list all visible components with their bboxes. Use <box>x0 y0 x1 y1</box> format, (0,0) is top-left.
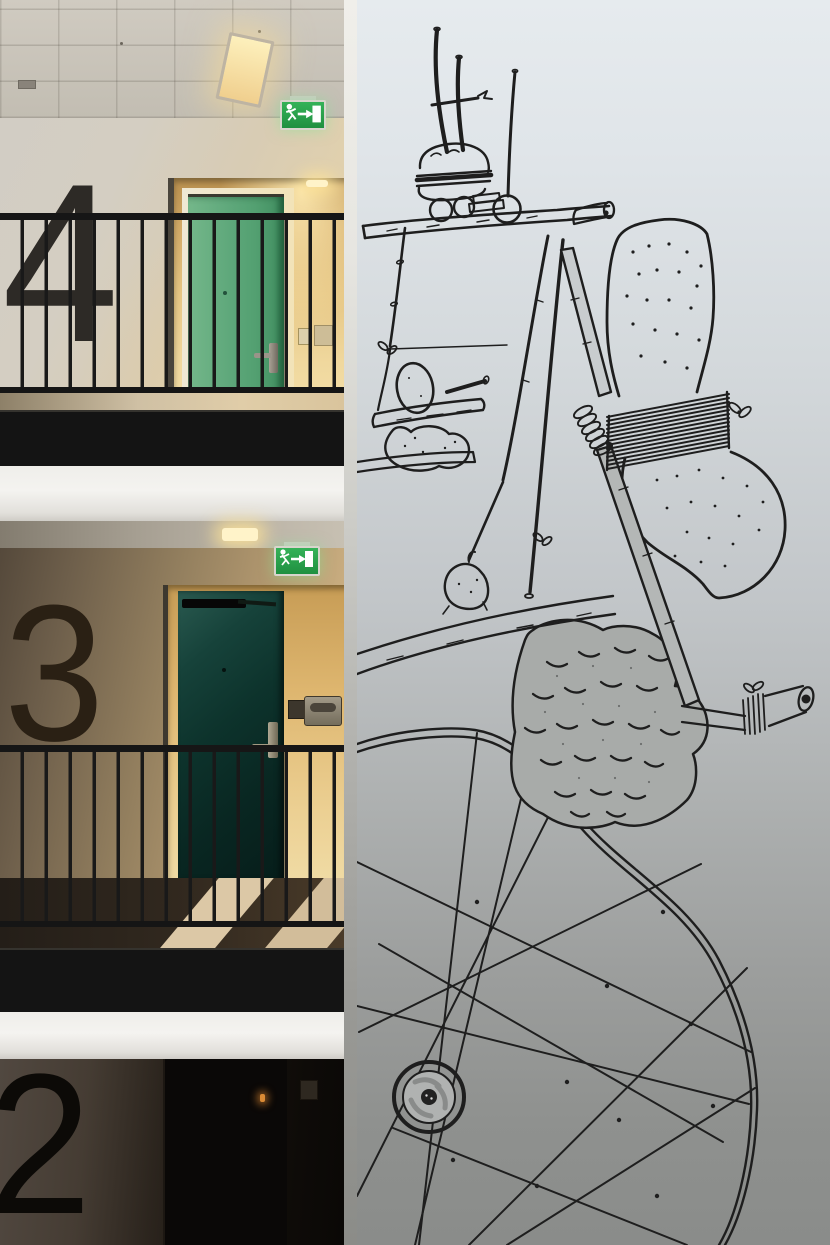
floor3-slab-fascia <box>0 948 345 1014</box>
mural-twine-band <box>607 392 753 470</box>
recessed-downlight <box>222 528 258 541</box>
running-man-icon <box>280 549 285 554</box>
sprinkler-dot <box>120 42 123 45</box>
mural-table-top <box>363 202 614 238</box>
mural-drawing <box>357 0 830 1245</box>
wall-corner-column <box>344 0 358 1245</box>
floor3-railing <box>0 745 345 927</box>
mural-weight-sack-on-plank <box>443 552 488 614</box>
exit-sign <box>280 96 326 130</box>
door-closer <box>182 599 246 608</box>
twine-bow <box>727 401 752 419</box>
railing-bottom-rail <box>0 921 345 927</box>
doorway-downlight <box>306 180 328 187</box>
mural-tall-poles <box>432 27 492 152</box>
slab-underside-band <box>0 1012 345 1059</box>
light-switch <box>288 700 305 719</box>
peephole <box>222 668 226 672</box>
sprinkler-dot <box>258 30 261 33</box>
exit-pictogram <box>282 102 324 126</box>
mural-sack <box>357 426 475 472</box>
running-man-icon <box>287 104 292 109</box>
floor2-numeral: 2 <box>0 1059 91 1245</box>
spoke-node-dots <box>451 900 715 1198</box>
railing-top-rail <box>0 745 345 752</box>
exit-sign-panel <box>274 546 320 576</box>
floor2-section: 2 <box>0 1059 345 1245</box>
exit-pictogram <box>276 548 316 570</box>
mural-wheel-hub <box>394 1062 464 1132</box>
floor4-slab-fascia <box>0 410 345 468</box>
slab-underside-band <box>0 466 345 521</box>
exit-sign <box>274 542 320 576</box>
corridor-view: 4 <box>0 0 345 1245</box>
railing-balusters <box>0 752 345 921</box>
atrium-photo: 4 <box>0 0 830 1245</box>
floor4-railing <box>0 213 345 393</box>
lit-doorbell <box>260 1094 265 1102</box>
door-icon <box>312 106 320 123</box>
mural-burger-stack <box>417 144 504 221</box>
mural-swing-structure <box>377 228 563 598</box>
floor2-door-dark <box>163 1059 287 1245</box>
mural-egg-on-log <box>373 360 490 427</box>
exit-sign-panel <box>280 100 326 130</box>
railing-balusters <box>0 220 345 387</box>
wall-intercom-phone <box>304 696 342 726</box>
railing-top-rail <box>0 213 345 220</box>
door-icon <box>305 551 313 567</box>
ceiling-vent <box>18 80 36 89</box>
floor3-numeral: 3 <box>4 577 104 771</box>
light-switch <box>300 1080 318 1100</box>
floor4-walkway <box>0 393 345 410</box>
